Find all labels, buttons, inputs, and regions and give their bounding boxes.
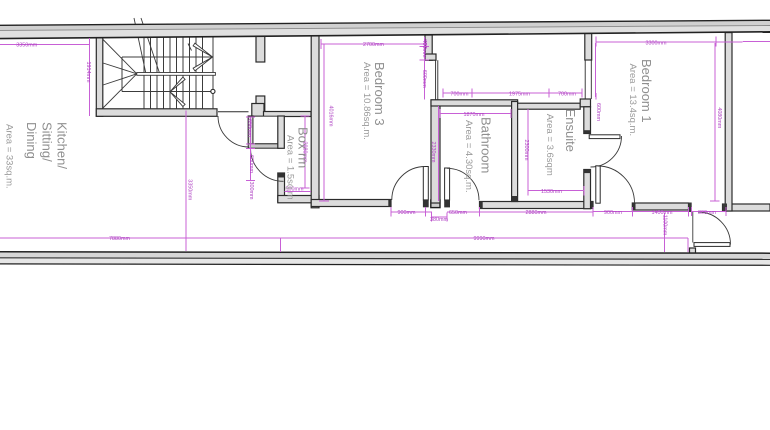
svg-text:Box rm: Box rm [296, 127, 311, 168]
svg-text:1530mm: 1530mm [541, 189, 562, 195]
svg-text:900mm: 900mm [604, 210, 622, 216]
svg-text:Area = 3.6sqm: Area = 3.6sqm [544, 114, 555, 176]
svg-text:Area = 4.30sq.m.: Area = 4.30sq.m. [463, 120, 474, 193]
svg-text:2700mm: 2700mm [363, 42, 384, 48]
svg-text:Bathroom: Bathroom [479, 117, 494, 173]
svg-text:1975mm: 1975mm [509, 92, 530, 98]
svg-text:650mm: 650mm [246, 119, 252, 137]
svg-text:3350mm: 3350mm [16, 42, 37, 48]
svg-text:3300mm: 3300mm [646, 40, 667, 46]
svg-text:Area = 33sq.m.: Area = 33sq.m. [4, 124, 15, 189]
svg-text:2330mm: 2330mm [430, 142, 436, 163]
svg-text:2300mm: 2300mm [523, 140, 529, 161]
svg-text:650mm: 650mm [449, 210, 467, 216]
svg-text:4080mm: 4080mm [716, 107, 722, 128]
svg-text:380mm: 380mm [430, 217, 448, 223]
svg-text:Area = 10.86sq.m.: Area = 10.86sq.m. [361, 62, 372, 140]
svg-text:900mm: 900mm [398, 210, 416, 216]
svg-text:600mm: 600mm [421, 70, 427, 88]
svg-text:4016mm: 4016mm [328, 106, 334, 127]
svg-text:2880mm: 2880mm [526, 210, 547, 216]
svg-text:Ensuite: Ensuite [563, 109, 578, 152]
svg-text:9990mm: 9990mm [474, 236, 495, 242]
svg-text:1100mm: 1100mm [661, 215, 667, 236]
svg-text:600mm: 600mm [595, 103, 601, 121]
svg-text:450mm: 450mm [421, 40, 427, 58]
svg-text:Kitchen/: Kitchen/ [55, 122, 70, 169]
svg-text:Dining: Dining [24, 122, 39, 159]
svg-text:Sitting/: Sitting/ [40, 122, 55, 162]
svg-text:700mm: 700mm [451, 92, 469, 98]
svg-text:700mm: 700mm [558, 92, 576, 98]
svg-text:Area = 13.4sq.m.: Area = 13.4sq.m. [627, 64, 638, 137]
svg-text:300mm: 300mm [248, 182, 254, 200]
svg-text:Bedroom 1: Bedroom 1 [639, 59, 654, 123]
svg-text:3350mm: 3350mm [187, 179, 193, 200]
svg-text:Area = 1.5sq.m: Area = 1.5sq.m [285, 135, 296, 200]
svg-text:1914mm: 1914mm [85, 62, 91, 83]
svg-text:600mm: 600mm [248, 155, 254, 173]
svg-text:Bedroom 3: Bedroom 3 [372, 62, 387, 126]
svg-text:7880mm: 7880mm [109, 236, 130, 242]
svg-text:800mm: 800mm [698, 210, 716, 216]
